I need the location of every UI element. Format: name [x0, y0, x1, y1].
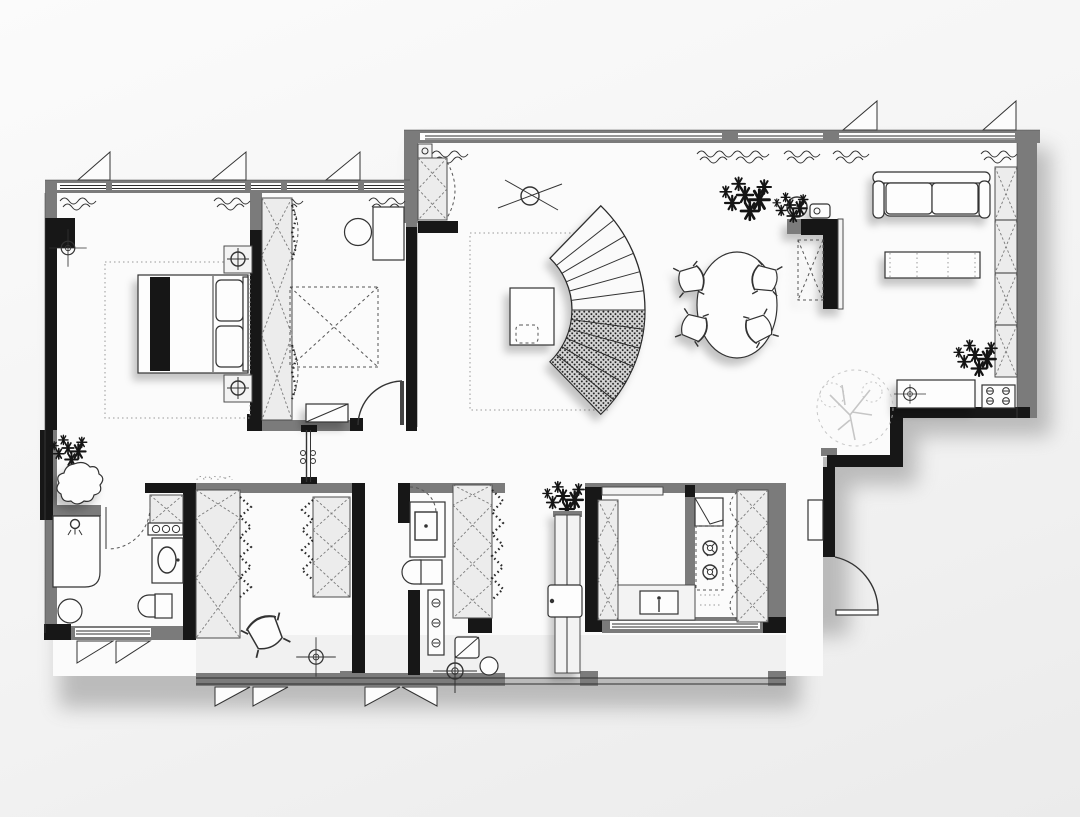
stool: [58, 599, 82, 623]
bench-seat: [894, 380, 975, 408]
washer-cabinet: [148, 495, 183, 535]
side-table: [510, 288, 554, 345]
wardrobe-strip: [262, 198, 292, 420]
fridge-niche: [808, 500, 823, 540]
electric-panel: [982, 385, 1015, 408]
bench: [306, 404, 348, 422]
wall-shelf: [602, 487, 663, 495]
desk: [373, 207, 404, 260]
toilet: [138, 594, 172, 618]
floor-plan-canvas: [0, 0, 1080, 817]
tv-bench: [885, 252, 980, 278]
pillow: [216, 280, 243, 321]
basin-cabinet: [152, 538, 183, 583]
pillow: [216, 326, 243, 367]
basin-cabinet: [410, 502, 445, 557]
double-bed: [138, 275, 248, 373]
wall-shelving-column: [995, 167, 1017, 377]
round-chair: [345, 219, 372, 246]
floor-plan-drawing: [0, 0, 1080, 817]
shower: [53, 516, 100, 587]
corner-cabinet: [695, 498, 723, 526]
toilet: [402, 560, 442, 584]
vestibule-floor: [786, 467, 823, 617]
nightstand: [224, 246, 252, 273]
sink-counter: [618, 585, 695, 620]
sofa: [873, 172, 990, 218]
handle-box: [548, 585, 582, 617]
window-opening-triangle-icon: [78, 152, 110, 180]
cabinet-column-left: [598, 500, 618, 620]
nightstand: [224, 375, 252, 402]
